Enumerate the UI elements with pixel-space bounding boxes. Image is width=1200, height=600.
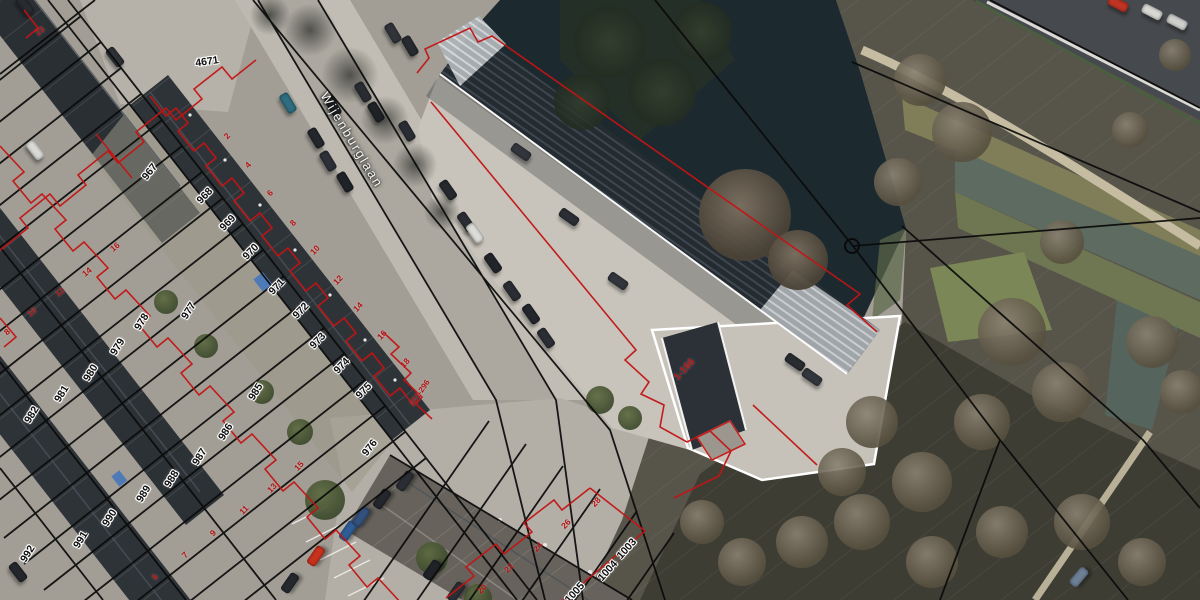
aerial-cadastral-map: 4671967968969970971972973974975976977978…: [0, 0, 1200, 600]
cadastral-parcel-lines: [0, 0, 1200, 600]
cadastral-overlay-layer: [0, 0, 1200, 600]
